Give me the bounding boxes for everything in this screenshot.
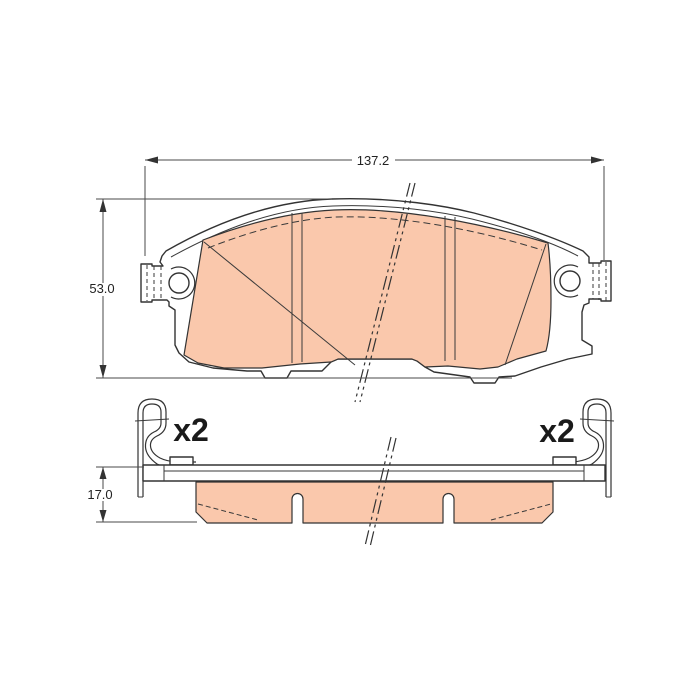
left-ear-hole [169,273,189,293]
quantity-label-left: x2 [173,412,209,448]
width-arrow-right [591,157,604,164]
thickness-arrow-top [100,467,107,479]
thickness-dimension-label: 17.0 [87,487,112,502]
shim-nub-right [553,457,576,465]
friction-material-side [196,482,553,523]
brake-pad-drawing-canvas: x2 x2 137.2 53.0 17.0 [0,0,700,700]
thickness-arrow-bottom [100,510,107,522]
height-dimension-label: 53.0 [89,281,114,296]
right-ear-hole [560,271,580,291]
friction-material-face [184,210,551,369]
front-view [141,183,611,402]
quantity-label-right: x2 [539,413,575,449]
backplate-side [143,465,605,481]
width-dimension-label: 137.2 [357,153,390,168]
width-arrow-left [145,157,158,164]
side-view: x2 x2 [135,399,614,547]
technical-drawing-svg: x2 x2 137.2 53.0 17.0 [0,0,700,700]
shim-nub-left [170,457,193,465]
height-arrow-bottom [100,365,107,378]
height-arrow-top [100,199,107,212]
